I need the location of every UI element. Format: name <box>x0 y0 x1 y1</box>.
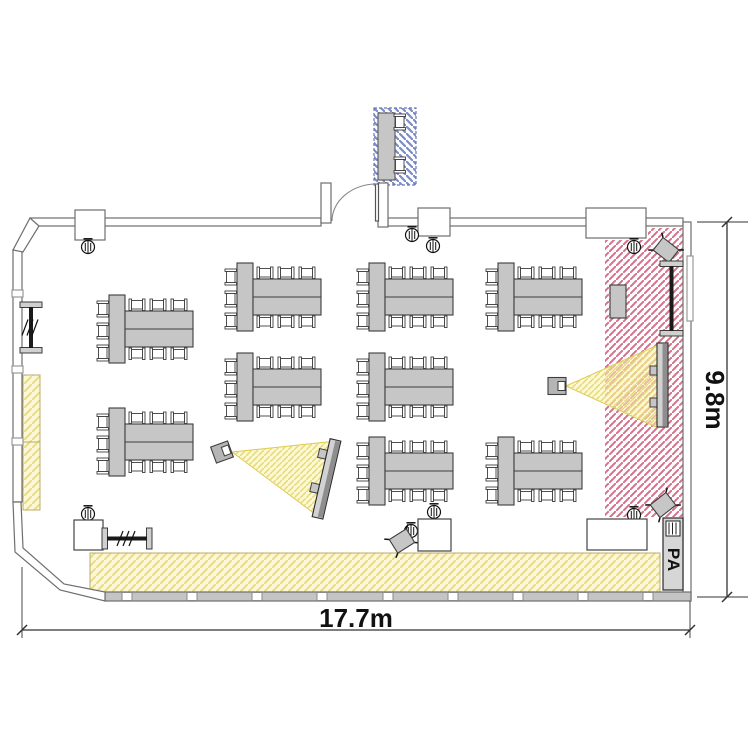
chair <box>560 267 576 279</box>
chair <box>357 443 369 459</box>
rack-end <box>660 331 683 337</box>
chair <box>225 403 237 419</box>
table-group <box>225 263 321 331</box>
chair <box>225 269 237 285</box>
chair <box>225 313 237 329</box>
chair <box>299 316 315 328</box>
chair-seat <box>392 492 403 501</box>
chair-seat <box>488 490 497 501</box>
service-table <box>418 519 451 551</box>
chair-seat <box>227 406 236 417</box>
table-group <box>97 295 193 363</box>
chair <box>357 269 369 285</box>
top-left-corner-wall <box>13 218 39 252</box>
table-group <box>486 263 582 331</box>
window-mullion <box>252 593 262 601</box>
chair <box>225 381 237 397</box>
chair-seat <box>281 318 292 327</box>
chair <box>486 269 498 285</box>
table-group <box>357 437 453 505</box>
left-wall-break-3 <box>12 438 23 445</box>
head-table <box>237 353 253 421</box>
chair-seat <box>542 443 553 452</box>
chair-seat <box>521 443 532 452</box>
chair-seat <box>99 461 108 472</box>
chair <box>97 414 109 430</box>
chair <box>129 412 145 424</box>
chair-seat <box>153 301 164 310</box>
head-table <box>109 295 125 363</box>
chair <box>410 441 426 453</box>
right-wall-window <box>687 256 693 321</box>
chair-seat <box>227 316 236 327</box>
lectern <box>610 285 626 318</box>
chair <box>560 490 576 502</box>
chair-seat <box>521 269 532 278</box>
chair <box>150 299 166 311</box>
head-table <box>369 263 385 331</box>
chair-seat <box>488 316 497 327</box>
head-table <box>237 263 253 331</box>
chair-seat <box>359 446 368 457</box>
chair-seat <box>99 439 108 450</box>
chair <box>410 357 426 369</box>
chair <box>278 267 294 279</box>
chair <box>410 267 426 279</box>
chair-seat <box>563 318 574 327</box>
chair-seat <box>392 443 403 452</box>
chair-seat <box>359 384 368 395</box>
head-table <box>498 263 514 331</box>
chair <box>486 465 498 481</box>
rack-end <box>147 528 153 549</box>
speaker-symbol <box>428 504 441 519</box>
chair <box>257 316 273 328</box>
chair-seat <box>542 492 553 501</box>
chair-seat <box>563 443 574 452</box>
chair <box>171 299 187 311</box>
furniture-layer <box>20 113 684 590</box>
chair-seat <box>542 269 553 278</box>
chair-seat <box>396 117 405 128</box>
chair <box>389 267 405 279</box>
screen-shade <box>663 344 668 426</box>
chair <box>357 313 369 329</box>
chair <box>389 441 405 453</box>
pa-label: PA <box>664 548 683 572</box>
chair <box>299 267 315 279</box>
chair <box>129 299 145 311</box>
height-dimension-label: 9.8m <box>700 370 730 429</box>
chair <box>431 490 447 502</box>
chair <box>486 487 498 503</box>
chair-seat <box>434 443 445 452</box>
chair-seat <box>132 301 143 310</box>
column-right <box>586 208 646 238</box>
chair <box>431 267 447 279</box>
chair-seat <box>260 269 271 278</box>
chair <box>431 316 447 328</box>
chair <box>357 291 369 307</box>
rack-end <box>20 348 42 354</box>
chair <box>410 406 426 418</box>
chair-seat <box>413 408 424 417</box>
chair-seat <box>359 362 368 373</box>
chair-seat <box>392 359 403 368</box>
chair <box>486 313 498 329</box>
chair <box>431 406 447 418</box>
chair-seat <box>413 492 424 501</box>
table-group <box>225 353 321 421</box>
table-group <box>97 408 193 476</box>
window-mullion <box>317 593 327 601</box>
chair-seat <box>413 443 424 452</box>
chair-seat <box>260 318 271 327</box>
floor-plan-canvas: 17.7m 9.8m PA <box>0 0 750 750</box>
chair-seat <box>132 414 143 423</box>
chair-seat <box>413 269 424 278</box>
rack-end <box>20 302 42 308</box>
left-wall-break-1 <box>12 290 23 297</box>
chair-seat <box>281 408 292 417</box>
chair-seat <box>521 492 532 501</box>
chair-seat <box>302 269 313 278</box>
chair-seat <box>488 446 497 457</box>
chair-seat <box>99 326 108 337</box>
rack-symbol <box>20 302 42 353</box>
chair-seat <box>302 408 313 417</box>
chair-seat <box>260 408 271 417</box>
chair <box>171 348 187 360</box>
chair <box>97 323 109 339</box>
chair-seat <box>392 318 403 327</box>
chair <box>257 357 273 369</box>
speaker-symbol <box>406 227 419 242</box>
chair <box>129 348 145 360</box>
chair <box>357 381 369 397</box>
chair <box>278 357 294 369</box>
chair <box>278 406 294 418</box>
chair <box>518 441 534 453</box>
chair-seat <box>132 463 143 472</box>
chair <box>389 357 405 369</box>
chair <box>486 443 498 459</box>
chair-seat <box>392 408 403 417</box>
chair-seat <box>153 463 164 472</box>
chair <box>389 406 405 418</box>
projector <box>211 441 234 463</box>
door-leaf <box>376 184 379 221</box>
registration-table <box>378 113 395 180</box>
chair-seat <box>434 359 445 368</box>
chair <box>357 359 369 375</box>
chair <box>486 291 498 307</box>
chair-seat <box>132 350 143 359</box>
chair-seat <box>359 468 368 479</box>
chair-seat <box>302 318 313 327</box>
chair <box>129 461 145 473</box>
chair-seat <box>359 490 368 501</box>
left-wall-break-2 <box>12 366 23 373</box>
table-group <box>357 263 453 331</box>
chair <box>299 357 315 369</box>
chair-seat <box>174 350 185 359</box>
chair <box>431 357 447 369</box>
chair-seat <box>281 359 292 368</box>
chair-seat <box>227 384 236 395</box>
width-dimension-label: 17.7m <box>319 603 393 633</box>
table-group <box>486 437 582 505</box>
chair <box>560 316 576 328</box>
chair-seat <box>359 272 368 283</box>
door-jamb-left <box>321 183 331 223</box>
chair-seat <box>281 269 292 278</box>
chair <box>431 441 447 453</box>
chair-seat <box>542 318 553 327</box>
chair <box>539 441 555 453</box>
buffet-zone-bottom <box>90 553 660 592</box>
chair <box>97 436 109 452</box>
chair-seat <box>260 359 271 368</box>
chair-seat <box>359 294 368 305</box>
chair-seat <box>227 272 236 283</box>
window-mullion <box>122 593 132 601</box>
chair-seat <box>434 269 445 278</box>
chair <box>357 487 369 503</box>
chair-leg <box>384 537 389 542</box>
chair-seat <box>563 492 574 501</box>
rack-bar <box>670 266 674 331</box>
buffet-zone-left-lower <box>23 442 40 510</box>
projector <box>548 378 566 395</box>
chair <box>410 316 426 328</box>
door-swing-arc <box>332 184 377 221</box>
chair-seat <box>488 272 497 283</box>
chair <box>518 490 534 502</box>
chair <box>278 316 294 328</box>
chair-seat <box>153 414 164 423</box>
chair-seat <box>174 414 185 423</box>
chair <box>518 267 534 279</box>
left-wall <box>13 250 22 502</box>
chair <box>394 157 406 173</box>
top-wall-left <box>30 218 321 226</box>
chair-seat <box>434 318 445 327</box>
column-left <box>75 210 105 240</box>
chair-leg <box>657 517 662 522</box>
chair <box>394 114 406 130</box>
chair-seat <box>302 359 313 368</box>
head-table <box>109 408 125 476</box>
chair <box>539 267 555 279</box>
chair <box>357 465 369 481</box>
chair <box>257 406 273 418</box>
chair-seat <box>521 318 532 327</box>
window-mullion <box>383 593 393 601</box>
window-mullion <box>448 593 458 601</box>
chair <box>257 267 273 279</box>
chair-seat <box>413 318 424 327</box>
chair <box>97 345 109 361</box>
chair-seat <box>488 294 497 305</box>
chair <box>539 490 555 502</box>
chair-seat <box>227 294 236 305</box>
chair-seat <box>227 362 236 373</box>
chair <box>150 461 166 473</box>
chair-seat <box>413 359 424 368</box>
window-mullion <box>578 593 588 601</box>
service-table <box>74 520 103 550</box>
window-mullion <box>187 593 197 601</box>
rack-symbol <box>102 528 152 549</box>
chair-seat <box>99 304 108 315</box>
chair-seat <box>174 463 185 472</box>
chair-seat <box>174 301 185 310</box>
chair-seat <box>396 160 405 171</box>
chair-seat <box>434 492 445 501</box>
head-table <box>369 437 385 505</box>
chair-seat <box>153 350 164 359</box>
chair-seat <box>359 406 368 417</box>
column-center <box>418 208 450 236</box>
chair-seat <box>99 417 108 428</box>
chair <box>560 441 576 453</box>
window-mullion <box>513 593 523 601</box>
speaker-symbol <box>427 238 440 253</box>
chair <box>299 406 315 418</box>
chair <box>539 316 555 328</box>
chair <box>97 458 109 474</box>
chair <box>389 316 405 328</box>
chair <box>171 412 187 424</box>
rack-end <box>102 528 108 549</box>
chair <box>225 291 237 307</box>
table-group <box>357 353 453 421</box>
service-table <box>587 519 647 550</box>
chair <box>97 301 109 317</box>
rack-end <box>660 261 683 267</box>
chair <box>150 348 166 360</box>
chair <box>410 490 426 502</box>
buffet-zone-left-upper <box>23 375 40 442</box>
chair <box>518 316 534 328</box>
speaker-symbol <box>82 239 95 254</box>
chair-seat <box>563 269 574 278</box>
chair-seat <box>359 316 368 327</box>
chair <box>357 403 369 419</box>
chair-seat <box>392 269 403 278</box>
door-jamb-right <box>378 183 388 227</box>
speaker-symbol <box>82 506 95 521</box>
projector-lens <box>558 382 565 391</box>
chair <box>389 490 405 502</box>
chair-seat <box>434 408 445 417</box>
chair-seat <box>99 348 108 359</box>
chair <box>150 412 166 424</box>
chair <box>225 359 237 375</box>
rack-slash <box>22 320 28 336</box>
floor-plan: 17.7m 9.8m PA <box>0 0 750 750</box>
chair-seat <box>488 468 497 479</box>
window-mullion <box>643 593 653 601</box>
head-table <box>369 353 385 421</box>
head-table <box>498 437 514 505</box>
chair <box>171 461 187 473</box>
